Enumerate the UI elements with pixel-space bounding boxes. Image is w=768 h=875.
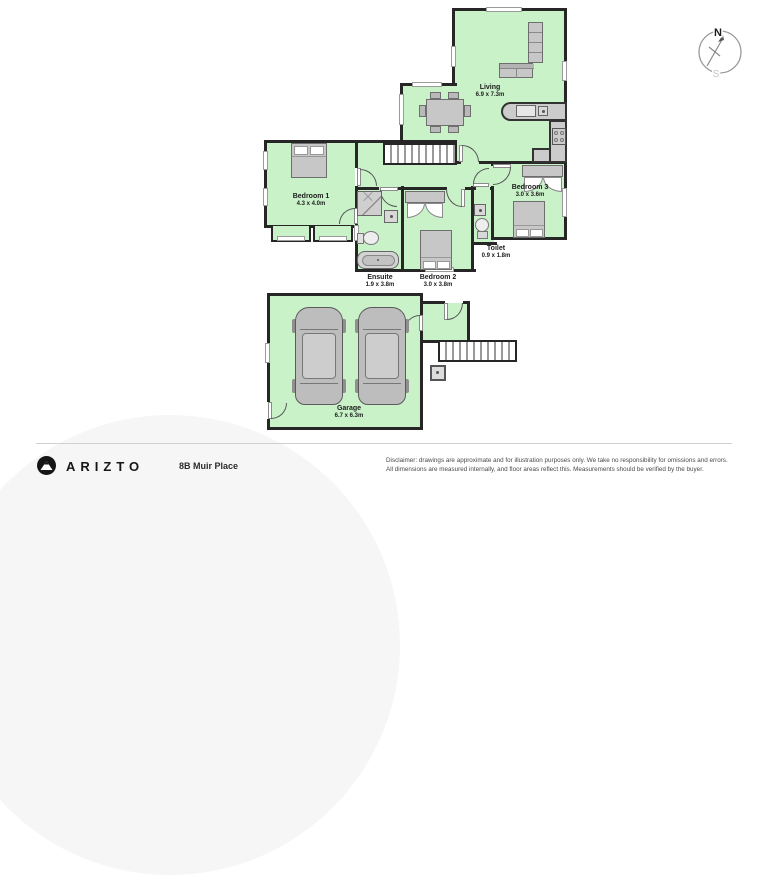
room-dims: 6.7 x 6.3m [335,413,364,420]
kitchen-sink [516,105,536,117]
room-label-bedroom1: Bedroom 1 4.3 x 4.0m [293,193,330,208]
window [263,151,268,170]
bed [420,230,452,270]
wall [264,170,267,189]
bathtub [357,251,399,269]
dining-table [426,99,464,126]
brand-name: ARIZTO [66,459,144,474]
dining-chair [448,126,459,133]
toilet-fixture [475,218,489,232]
window [562,61,567,81]
wall [357,187,379,190]
bookshelf [528,22,543,63]
wall [452,67,455,86]
compass-south-label: S [713,69,720,80]
room-dims: 3.0 x 3.6m [512,192,549,199]
wardrobe [522,165,563,177]
compass-north-label: N [714,27,722,39]
room-name: Toilet [482,245,511,253]
room-name: Living [476,84,505,92]
wall [267,293,423,296]
wall [421,340,440,343]
wall [401,186,404,272]
compass-icon: N S [693,14,747,80]
dining-chair [448,92,459,99]
room-label-ensuite: Ensuite 1.9 x 3.8m [366,274,395,289]
window [277,236,305,241]
room-name: Bedroom 1 [293,193,330,201]
room-dims: 0.9 x 1.8m [482,253,511,260]
car [294,307,344,405]
wardrobe [405,191,445,203]
room-label-bedroom2: Bedroom 2 3.0 x 3.8m [420,274,457,289]
wall [420,331,423,430]
room-dims: 1.9 x 3.8m [366,282,395,289]
disclaimer-line-1: Disclaimer: drawings are approximate and… [386,457,728,464]
vanity-sink [384,210,398,223]
wall [564,159,567,189]
bed [291,143,327,178]
staircase-lower [438,340,517,362]
window [451,46,456,67]
staircase-upper [383,143,457,165]
wall [267,419,270,430]
stove [552,128,566,145]
room-name: Garage [335,405,364,413]
wall [264,206,267,228]
floor-plan: Living 6.9 x 7.3m Bedroom 1 4.3 x 4.0m B… [0,0,768,452]
property-address: 8B Muir Place [179,461,238,471]
toilet-fixture [363,231,379,245]
room-label-bedroom3: Bedroom 3 3.0 x 3.6m [512,184,549,199]
room-name: Bedroom 2 [420,274,457,282]
room-label-garage: Garage 6.7 x 6.3m [335,405,364,420]
wall [397,187,447,190]
window [263,188,268,206]
wall [267,427,423,430]
wall [467,301,470,342]
dining-chair [430,92,441,99]
window [319,236,347,241]
footer-divider [36,443,732,444]
window [412,82,442,87]
utility-fixture [430,365,446,381]
sofa [499,63,533,78]
dining-chair [464,105,471,117]
room-dims: 3.0 x 3.8m [420,282,457,289]
wall [355,140,358,168]
disclaimer-line-2: All dimensions are measured internally, … [386,466,704,473]
wall [564,217,567,240]
arizto-logo-icon [37,456,56,475]
room-dims: 4.3 x 4.0m [293,201,330,208]
room-name: Ensuite [366,274,395,282]
bed [513,201,545,238]
wall [471,186,474,272]
kitchen-counter [532,148,551,163]
window [562,188,567,217]
kitchen-faucet [538,106,548,116]
room-dims: 6.9 x 7.3m [476,92,505,99]
footer: ARIZTO 8B Muir Place Disclaimer: drawing… [0,440,768,512]
car [357,307,407,405]
window [486,7,522,12]
wall [564,8,567,62]
window [399,94,404,125]
room-label-toilet: Toilet 0.9 x 1.8m [482,245,511,260]
wall [400,125,403,143]
toilet-sink [474,204,486,216]
room-name: Bedroom 3 [512,184,549,192]
wall [355,269,425,272]
room-label-living: Living 6.9 x 7.3m [476,84,505,99]
dining-chair [419,105,426,117]
wall [452,8,455,47]
wall [267,293,270,344]
wall [420,293,423,315]
toilet-fixture [477,231,488,239]
wall [267,363,270,402]
shower [357,191,382,216]
window [265,343,270,363]
dining-chair [430,126,441,133]
wall [491,186,494,240]
wall [421,301,445,304]
